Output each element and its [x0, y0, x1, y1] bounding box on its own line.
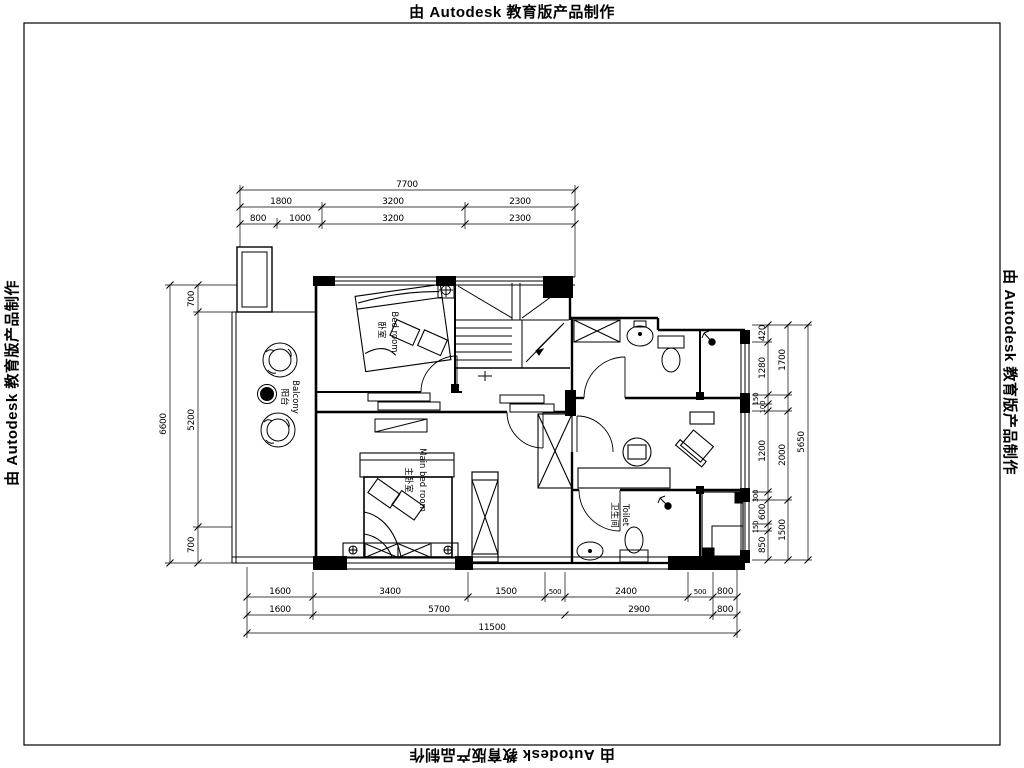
dim-right-1700: 1700: [778, 349, 788, 371]
dim-right-overall: 5650: [797, 431, 807, 453]
balcony-label-zh: 阳台: [279, 388, 290, 405]
dim-right-600: 600: [758, 503, 768, 520]
dim-top-3200a: 3200: [382, 197, 404, 207]
dim-right-420: 420: [758, 324, 768, 341]
dim-bot-500a: 500: [549, 588, 561, 596]
master-bedroom-label-zh: 主卧室: [403, 467, 414, 493]
dim-bot-800b: 800: [717, 605, 734, 615]
bedroom-bed: [355, 284, 451, 371]
dim-top-3200b: 3200: [382, 214, 404, 224]
dim-top-2300a: 2300: [509, 197, 531, 207]
dimensions-bottom-labels: 1600 3400 1500 500 2400 500 800 1600 570…: [269, 587, 734, 633]
dim-left-700b: 700: [187, 536, 197, 553]
dimensions-right-labels: 420 1280 150 100 1200 300 600 150 850 17…: [752, 324, 807, 553]
dim-right-300: 300: [752, 490, 760, 502]
dim-top-800: 800: [250, 214, 267, 224]
bedroom-label-en: Bed room: [389, 311, 399, 352]
dim-bot-1500: 1500: [495, 587, 517, 597]
dimensions-left: [165, 282, 237, 567]
bathroom-fixtures: [574, 320, 715, 372]
dim-right-1500: 1500: [778, 519, 788, 541]
dim-bot-1600b: 1600: [269, 605, 291, 615]
dim-left-5200: 5200: [187, 409, 197, 431]
dimensions-top-labels: 7700 1800 3200 2300 800 1000 3200 2300: [250, 180, 532, 224]
floor-plan-svg: 卧室 Bed room 主卧室 Main bed room 阳台 Balcony…: [0, 0, 1024, 768]
dim-bot-5700: 5700: [428, 605, 450, 615]
dim-right-2000: 2000: [778, 444, 788, 466]
dim-right-850: 850: [758, 536, 768, 553]
bedroom-label-zh: 卧室: [376, 321, 387, 339]
dim-right-150b: 150: [752, 521, 760, 533]
dim-top-overall: 7700: [396, 180, 418, 190]
dim-bot-2400: 2400: [615, 587, 637, 597]
dim-bot-800a: 800: [717, 587, 734, 597]
dim-bot-500b: 500: [694, 588, 706, 596]
sheet-border: [24, 23, 1000, 745]
dim-left-700a: 700: [187, 290, 197, 307]
wardrobes: [472, 414, 572, 562]
dim-top-1000: 1000: [289, 214, 311, 224]
dim-top-2300b: 2300: [509, 214, 531, 224]
dim-bot-1600a: 1600: [269, 587, 291, 597]
dim-bot-2900: 2900: [628, 605, 650, 615]
walls: [232, 247, 749, 569]
dim-left-overall: 6600: [159, 413, 169, 435]
dim-right-1280: 1280: [758, 357, 768, 379]
toilet-label-en: Toilet: [620, 503, 630, 527]
dim-right-1200: 1200: [758, 440, 768, 462]
dim-bot-overall: 11500: [478, 623, 506, 633]
dim-bot-3400: 3400: [379, 587, 401, 597]
master-bed: [343, 453, 458, 558]
master-bedroom-label-en: Main bed room: [417, 448, 427, 512]
dimensions-left-labels: 6600 700 5200 700: [159, 290, 197, 553]
balcony-label-en: Balcony: [290, 380, 300, 414]
dim-top-1800: 1800: [270, 197, 292, 207]
dim-right-100: 100: [759, 401, 767, 413]
toilet-label-zh: 卫生间: [609, 502, 620, 528]
